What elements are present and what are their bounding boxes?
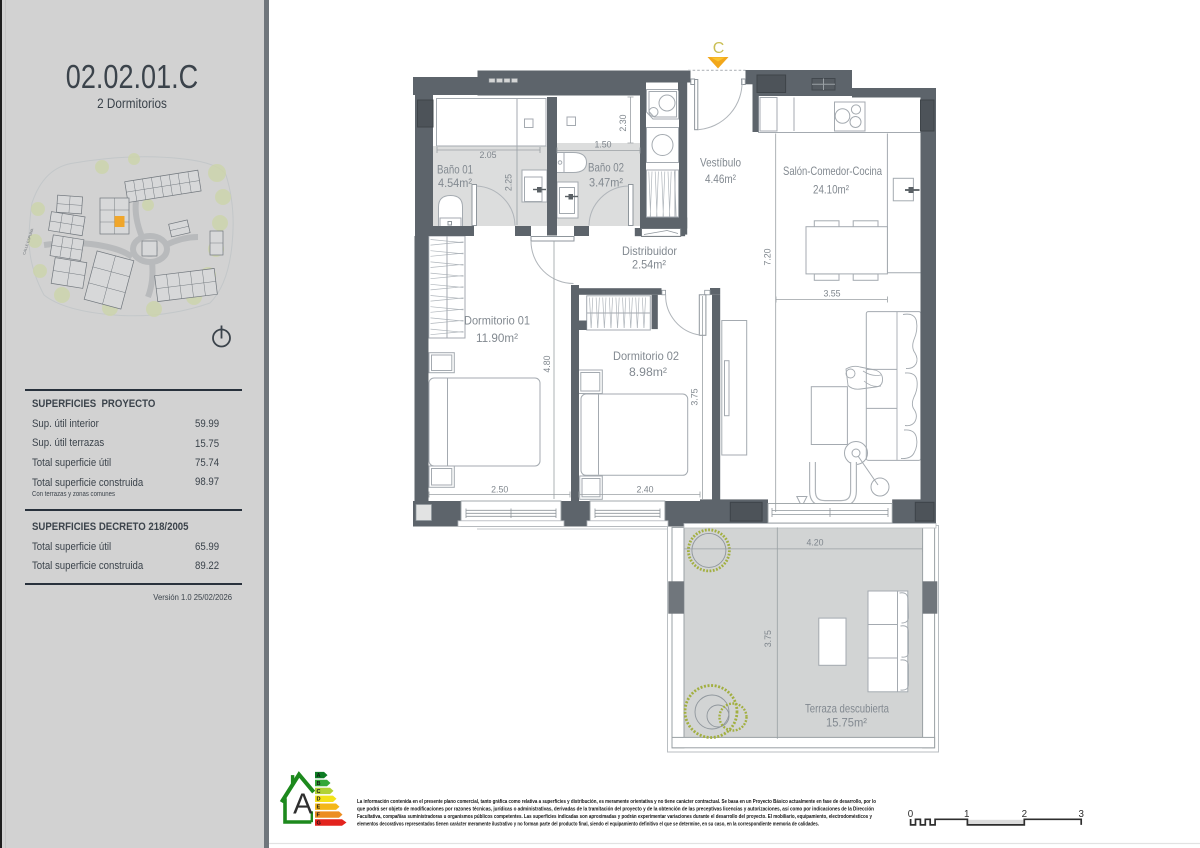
svg-text:G: G [317,820,321,826]
svg-text:2.05: 2.05 [479,150,496,160]
svg-text:4.54m²: 4.54m² [438,176,472,190]
svg-text:A: A [293,789,313,821]
svg-text:3: 3 [1078,809,1084,820]
svg-text:0: 0 [908,809,914,820]
svg-text:C: C [713,40,725,57]
svg-text:2.50: 2.50 [491,485,508,495]
svg-text:A: A [317,773,321,779]
svg-text:elementos decorativos represen: elementos decorativos representados tien… [357,822,819,828]
svg-text:2.54m²: 2.54m² [632,258,666,272]
svg-text:2.30: 2.30 [618,114,628,131]
svg-text:que podrá ser objeto de modifi: que podrá ser objeto de modificaciones p… [357,807,874,813]
svg-text:Salón-Comedor-Cocina: Salón-Comedor-Cocina [783,164,882,178]
svg-text:D: D [317,797,321,803]
svg-text:2.40: 2.40 [636,485,653,495]
svg-text:7.20: 7.20 [763,248,773,265]
svg-text:Terraza descubierta: Terraza descubierta [805,702,889,716]
svg-text:Dormitorio 02: Dormitorio 02 [613,349,679,363]
svg-text:8.98m²: 8.98m² [629,365,667,379]
svg-text:Baño 01: Baño 01 [437,163,473,177]
svg-text:Baño 02: Baño 02 [588,161,624,175]
svg-text:2.25: 2.25 [504,174,514,191]
svg-text:C: C [317,789,321,795]
svg-text:B: B [317,781,321,787]
svg-text:4.20: 4.20 [806,538,823,548]
svg-text:E: E [317,805,321,811]
svg-text:3.75: 3.75 [689,388,699,405]
svg-text:La información contenida en el: La información contenida en el presente … [357,799,877,805]
svg-text:Facultativa, compañías suminis: Facultativa, compañías suministradoras u… [357,814,872,820]
svg-text:3.75: 3.75 [763,630,773,647]
svg-text:3.47m²: 3.47m² [589,176,623,190]
svg-text:15.75m²: 15.75m² [826,716,867,730]
svg-text:3.55: 3.55 [823,289,840,299]
svg-text:1.50: 1.50 [594,140,611,150]
svg-text:24.10m²: 24.10m² [813,183,849,197]
svg-text:F: F [317,813,321,819]
svg-text:11.90m²: 11.90m² [476,331,518,345]
svg-text:4.80: 4.80 [542,355,552,372]
svg-text:Dormitorio 01: Dormitorio 01 [464,314,530,328]
svg-text:2: 2 [1022,809,1027,820]
svg-text:4.46m²: 4.46m² [705,172,736,186]
svg-text:Vestíbulo: Vestíbulo [700,156,741,170]
svg-text:1: 1 [964,809,969,820]
svg-text:Distribuidor: Distribuidor [622,244,677,258]
